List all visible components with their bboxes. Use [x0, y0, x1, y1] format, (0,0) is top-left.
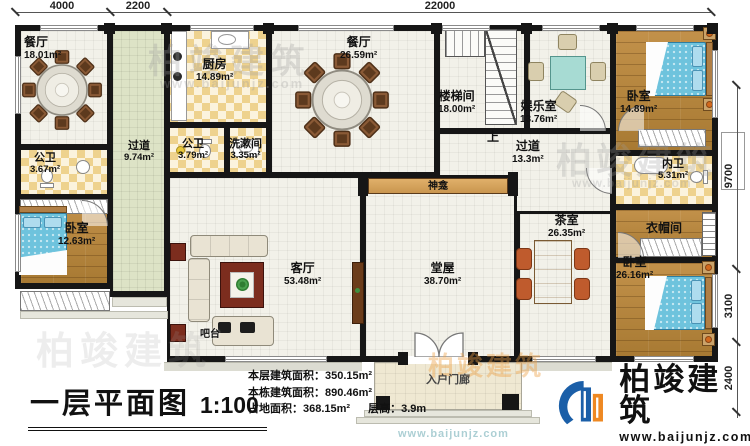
- kitchen-sink-basin: [218, 34, 236, 45]
- bar-stool: [240, 322, 255, 333]
- tv-plant-dot: [355, 288, 360, 293]
- toilet-tank: [703, 170, 708, 184]
- wardrobe: [638, 129, 706, 147]
- label-bar: 吧台: [200, 325, 220, 340]
- label-bedroom-left: 卧室12.63m²: [58, 222, 95, 247]
- label-living: 客厅53.48m²: [284, 262, 321, 287]
- stove-burner: [173, 72, 182, 81]
- tea-table: [534, 240, 572, 304]
- chair: [590, 62, 606, 81]
- chair: [574, 248, 590, 270]
- plan-title-block: 一层平面图 1:100: [28, 380, 267, 431]
- stat-row: 占地面积：368.15m²层高：3.9m: [248, 401, 426, 418]
- brand-url: www.baijunjz.com: [619, 430, 750, 444]
- pillow: [23, 217, 41, 228]
- wall-pillar: [263, 23, 274, 34]
- terrace-hatch: [20, 291, 110, 311]
- stove-burner: [173, 52, 182, 61]
- bed-headboard: [19, 206, 67, 213]
- window: [190, 25, 254, 31]
- pillow: [692, 46, 703, 67]
- game-table: [550, 56, 586, 90]
- pillow: [692, 70, 703, 91]
- nightstand: [702, 261, 715, 274]
- label-bath-mid: 公卫3.79m²: [178, 138, 208, 162]
- pillow: [691, 280, 702, 301]
- label-stairwell: 楼梯间18.00m²: [438, 90, 475, 115]
- toilet: [690, 171, 703, 183]
- window: [542, 25, 600, 31]
- bed-headboard: [705, 277, 712, 329]
- brand-text: 柏竣建筑 www.baijunjz.com: [619, 364, 750, 444]
- nightstand: [702, 333, 715, 346]
- label-dining1: 餐厅18.01m²: [24, 36, 61, 61]
- label-tea: 茶室26.35m²: [548, 214, 585, 239]
- label-corridor-left: 过道9.74m²: [114, 140, 164, 164]
- tv-cabinet: [352, 262, 364, 324]
- chair: [516, 248, 532, 270]
- window: [15, 214, 21, 272]
- floor-plan: 神龛: [0, 0, 750, 446]
- wall-pillar: [607, 23, 618, 34]
- wall-pillar: [161, 23, 172, 34]
- plan-title-underline: 一层平面图 1:100: [28, 380, 267, 431]
- window: [298, 25, 394, 31]
- window: [712, 274, 718, 328]
- window: [40, 25, 98, 31]
- plant: [236, 278, 249, 291]
- wardrobe: [640, 238, 702, 257]
- brand-logo-icon: [556, 376, 611, 432]
- stat-row: 本栋建筑面积：890.46m²: [248, 385, 426, 402]
- brand-name: 柏竣建筑: [619, 364, 750, 426]
- label-kitchen: 厨房14.89m²: [196, 58, 233, 83]
- window: [712, 50, 718, 118]
- label-corridor-right: 过道13.3m²: [512, 140, 544, 165]
- wall-pillar: [707, 23, 718, 34]
- window: [532, 356, 596, 362]
- chair: [574, 278, 590, 300]
- chair: [558, 34, 577, 50]
- watermark-url-teal: www.baijunjz.com: [398, 428, 509, 440]
- sofa-left: [188, 258, 210, 322]
- sofa-top: [190, 235, 268, 257]
- dim-top-1: 4000: [32, 0, 92, 12]
- side-table: [170, 243, 186, 261]
- corridor-south-step: [112, 297, 167, 307]
- wall-pillar: [431, 23, 442, 34]
- label-bath-right: 内卫5.31m²: [658, 158, 688, 182]
- chair: [528, 62, 544, 81]
- sink: [76, 160, 90, 174]
- label-dining2: 餐厅26.59m²: [340, 36, 377, 61]
- window: [636, 25, 694, 31]
- stair-up-label: 上: [487, 128, 499, 145]
- porch-step-2: [356, 417, 540, 424]
- wall-pillar: [521, 23, 532, 34]
- window: [15, 56, 21, 114]
- entry-opening: [406, 356, 470, 364]
- stair-flight-upper: [445, 29, 485, 57]
- label-entertainment: 娱乐室13.76m²: [520, 100, 557, 125]
- label-bedroom-topright: 卧室14.89m²: [620, 90, 657, 115]
- label-bath-left: 公卫3.67m²: [30, 152, 60, 176]
- porch-pillar-right: [502, 394, 519, 410]
- wall-pillar: [104, 23, 115, 34]
- shrine-post-left: [358, 172, 368, 196]
- chair: [516, 278, 532, 300]
- terrace-step: [20, 311, 168, 319]
- label-hall: 堂屋38.70m²: [424, 262, 461, 287]
- entry-double-door: [404, 331, 474, 357]
- dim-right-1: 9700: [723, 151, 735, 201]
- label-closet: 衣帽间: [646, 222, 682, 236]
- dining-table-round-2: [288, 46, 396, 154]
- pillow: [691, 303, 702, 324]
- plan-title: 一层平面图: [30, 380, 190, 422]
- stair-flight-main: [485, 29, 517, 125]
- label-wash: 洗漱间3.35m²: [229, 138, 262, 162]
- shrine-post-right: [508, 172, 518, 196]
- dim-line-top: [15, 12, 712, 13]
- window: [225, 356, 327, 362]
- dim-top-2: 2200: [106, 0, 170, 12]
- window: [442, 25, 490, 31]
- closet-shelf: [702, 212, 716, 256]
- area-stats: 本层建筑面积：350.15m² 本栋建筑面积：890.46m² 占地面积：368…: [248, 368, 426, 418]
- dim-right-2: 3100: [723, 281, 735, 331]
- label-bedroom-bottomright: 卧室26.16m²: [616, 256, 653, 281]
- side-table: [170, 324, 186, 342]
- dim-top-3: 22000: [405, 0, 475, 12]
- stat-row: 本层建筑面积：350.15m²: [248, 368, 426, 385]
- shrine-counter: 神龛: [368, 178, 508, 194]
- brand-logo-block: 柏竣建筑 www.baijunjz.com: [556, 364, 750, 444]
- toilet-tank: [40, 183, 54, 188]
